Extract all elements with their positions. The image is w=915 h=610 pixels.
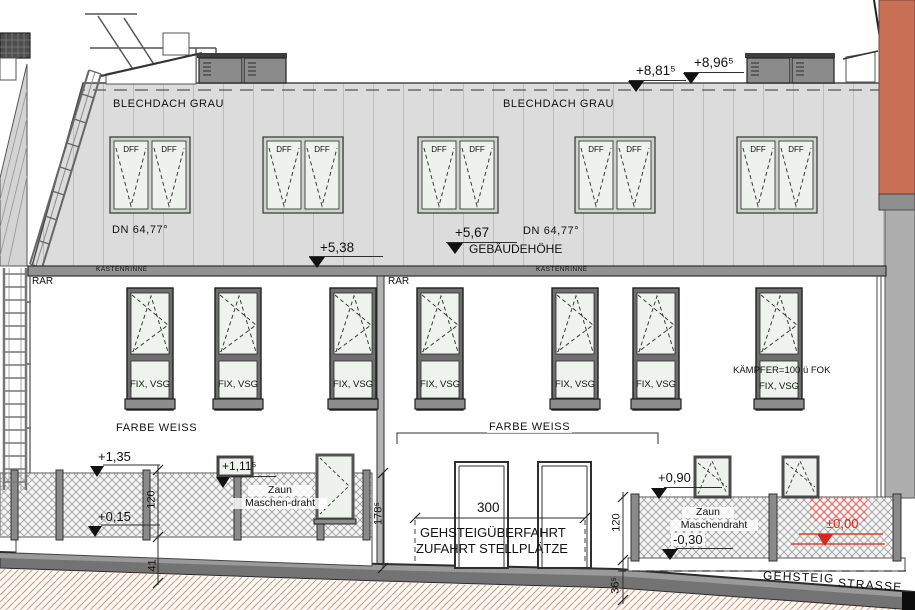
fence-label-left-line1: Zaun (248, 485, 312, 496)
fence-label-right-line2: Maschendraht (670, 520, 758, 531)
dff-label: DFF (422, 146, 456, 154)
level-base-right: -0,30 (671, 533, 705, 546)
gutter-band (28, 266, 886, 276)
level-fence-top-left: +1,35 (98, 450, 131, 463)
sidewalk-label: GEHSTEIG (763, 569, 835, 584)
level-zero: ±0,00 (826, 517, 858, 530)
dff-label: DFF (305, 146, 339, 154)
street-edge-block (902, 592, 915, 610)
rooftop-louvre-box (0, 33, 30, 58)
rar-label-left: RAR (32, 277, 53, 287)
elevation-linework (0, 0, 915, 610)
glazing-label: FIX, VSG (330, 380, 376, 390)
dff-label: DFF (579, 146, 613, 154)
roof-slope-label-right: DN 64,77° (523, 226, 579, 237)
building-height-label: GEBÄUDEHÖHE (469, 243, 562, 255)
fence-label-left-line2: Maschen-draht (233, 498, 327, 509)
dim-fence-height-right: 120 (612, 501, 623, 545)
kaempfer-label: KÄMPFER=100 ü FOK (733, 366, 830, 376)
hvac-units-left (197, 53, 287, 83)
level-fence-step-left: +1,11⁵ (222, 460, 256, 472)
farbe-weiss-bracket (397, 433, 658, 444)
dff-label: DFF (741, 146, 775, 154)
dim-plinth-left: 41 (148, 544, 159, 588)
dff-label: DFF (152, 146, 186, 154)
level-top-equipment: +8,96⁵ (694, 56, 734, 70)
roof-slope-label-left: DN 64,77° (112, 225, 168, 236)
level-base-left: +0,15 (98, 510, 131, 523)
glazing-label: FIX, VSG (633, 380, 679, 390)
dff-label: DFF (267, 146, 301, 154)
roof-material-label-right: BLECHDACH GRAU (503, 99, 614, 110)
fence-right (618, 494, 911, 571)
level-building-height: +5,67 (455, 226, 489, 240)
glazing-label: FIX, VSG (756, 382, 802, 392)
glazing-label: FIX, VSG (215, 380, 261, 390)
dim-wall-height: 178⁵ (374, 492, 385, 536)
fence-label-right-line1: Zaun (682, 507, 734, 518)
gutter-label-left: KASTENRINNE (96, 267, 148, 274)
dim-gate-width: 300 (477, 501, 500, 515)
level-fence-top-right: +0,90 (658, 471, 691, 484)
facade-color-label-mid: FARBE WEISS (487, 422, 572, 433)
rar-label-mid: RAR (388, 277, 409, 287)
roof-material-label-left: BLECHDACH GRAU (113, 99, 224, 110)
gutter-label-right: KASTENRINNE (536, 267, 588, 274)
rooftop-shed (101, 53, 202, 84)
glazing-label: FIX, VSG (552, 380, 598, 390)
facade-ladder (4, 268, 31, 490)
left-background-roof (0, 33, 30, 266)
driveway-label-line1: GEHSTEIGÜBERFAHRT (420, 526, 566, 539)
facade-windows (125, 288, 804, 410)
dff-label: DFF (779, 146, 813, 154)
glazing-label: FIX, VSG (417, 380, 463, 390)
glazing-label: FIX, VSG (127, 380, 173, 390)
level-top-roof: +8,81⁵ (636, 64, 676, 78)
dff-label: DFF (460, 146, 494, 154)
dff-label: DFF (617, 146, 651, 154)
dim-curb-right: 36⁵ (611, 564, 622, 608)
driveway-label-line2: ZUFAHRT STELLPLÄTZE (416, 542, 568, 555)
dim-fence-height-left: 120 (147, 478, 158, 522)
level-eave-left: +5,38 (320, 241, 354, 255)
elevation-sheet: BLECHDACH GRAU BLECHDACH GRAU DFF DFF DF… (0, 0, 915, 610)
dff-label: DFF (114, 146, 148, 154)
hvac-units-right (745, 51, 878, 83)
facade-color-label-left: FARBE WEISS (116, 423, 197, 434)
